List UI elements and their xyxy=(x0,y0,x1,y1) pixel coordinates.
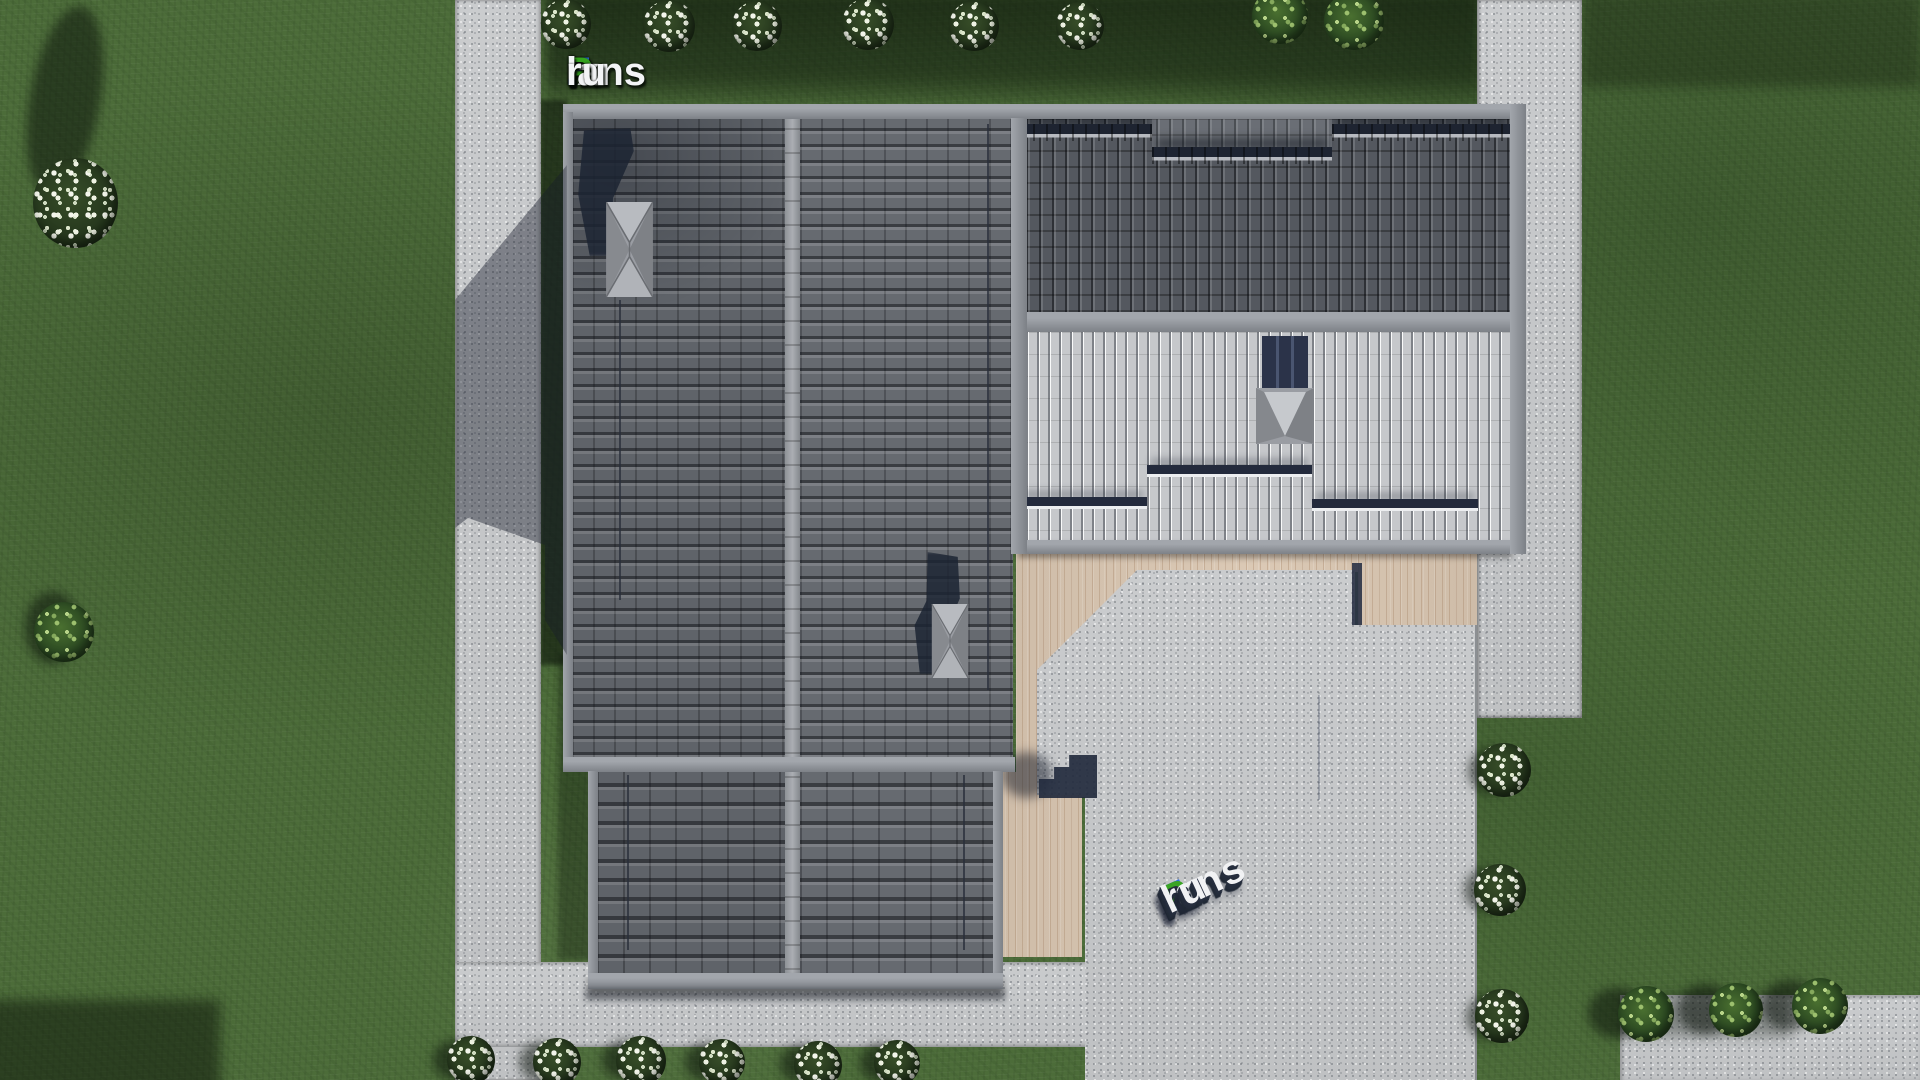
aerial-render: FixPlans.ru xyxy=(0,0,1920,1080)
flower-bush xyxy=(732,1,782,51)
roof-shadow-on-walkway xyxy=(585,989,1005,1001)
flower-bush xyxy=(643,0,695,52)
roof-extension-bottom-eave xyxy=(588,973,1003,989)
flower-bush xyxy=(699,1039,745,1080)
snow-guard xyxy=(1152,147,1332,164)
flower-bush xyxy=(842,0,894,50)
tree xyxy=(1792,978,1848,1034)
roof-main-bottom-eave xyxy=(563,757,1015,772)
roof-skylight xyxy=(1256,336,1314,444)
roof-ridge xyxy=(785,104,800,975)
flower-bush xyxy=(1475,989,1529,1043)
roof-extension-left-slope xyxy=(597,771,785,975)
roof-rod xyxy=(627,775,629,950)
roof-section-divider xyxy=(1011,118,1027,554)
flower-bush xyxy=(533,1038,581,1080)
snow-guard xyxy=(1020,124,1152,141)
flower-bush xyxy=(447,1036,495,1080)
tree xyxy=(1709,983,1763,1037)
roof-wing-bottom-eave xyxy=(1018,540,1512,554)
roof-extension-right-edge xyxy=(993,771,1003,977)
roof-wing-recess xyxy=(1152,114,1332,150)
flower-bush xyxy=(949,1,999,51)
roof-skylight xyxy=(928,604,972,678)
roof-rod xyxy=(963,775,965,950)
snow-guard xyxy=(1312,499,1478,514)
patio-joint-line xyxy=(1318,695,1320,800)
lawn-shadow-top-right xyxy=(1582,0,1920,87)
snow-guard xyxy=(1020,497,1147,512)
roof-extension-left-edge xyxy=(588,771,598,977)
snow-guard xyxy=(1332,124,1510,141)
deck-joint-shadow xyxy=(1352,563,1362,625)
flower-bush xyxy=(1477,743,1531,797)
flower-bush xyxy=(33,158,118,248)
roof-rod xyxy=(619,300,621,600)
flower-bush xyxy=(1474,864,1526,916)
flower-bush xyxy=(616,1036,666,1080)
lawn-shadow-corner xyxy=(0,1000,220,1080)
roof-right-edge xyxy=(1510,104,1526,554)
roof-wing-eave xyxy=(1018,312,1512,332)
tree xyxy=(34,602,94,662)
roof-top-eave xyxy=(563,104,1512,119)
flower-bush xyxy=(1056,2,1104,50)
snow-guard xyxy=(1147,465,1312,480)
roof-skylight xyxy=(606,202,653,297)
walkway-left xyxy=(455,0,541,1080)
tree xyxy=(1618,986,1674,1042)
flower-bush xyxy=(541,0,591,49)
patio xyxy=(1035,570,1477,1080)
roof-rod xyxy=(987,124,989,690)
flower-bush xyxy=(874,1040,920,1080)
